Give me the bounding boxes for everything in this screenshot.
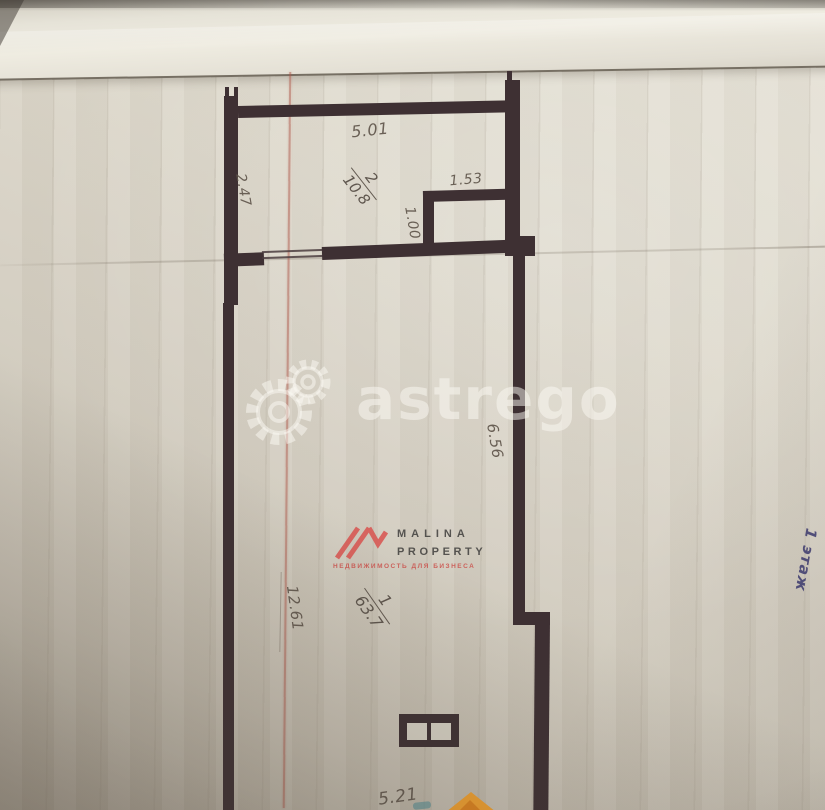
wall-right-lower xyxy=(533,620,550,810)
dimension-left-height: 12.61 xyxy=(283,584,307,632)
malina-m-icon xyxy=(334,524,392,560)
wall-closet-vertical xyxy=(423,192,434,249)
orange-marker-shadow xyxy=(458,800,482,810)
malina-property-logo: MALINA PROPERTY НЕДВИЖИМОСТЬ ДЛЯ БИЗНЕСА xyxy=(330,522,505,577)
wall-divider-main xyxy=(322,240,507,260)
wall-closet-horizontal xyxy=(423,189,507,202)
wall-top xyxy=(238,100,508,118)
vent-shaft xyxy=(399,714,459,747)
dimension-extension-line xyxy=(279,572,281,652)
malina-name-text: MALINA xyxy=(397,528,470,540)
dimension-top: 5.01 xyxy=(350,119,389,142)
photo-top-edge-gradient xyxy=(0,0,825,8)
floor-plan-photo: 5.01 2 10.8 1.53 1.00 2.47 6.56 12.61 1 … xyxy=(0,0,825,810)
astrego-watermark: astrego xyxy=(246,352,621,464)
wall-divider-left-stub xyxy=(224,252,264,266)
wall-right-upper xyxy=(505,80,520,248)
wall-left-lower xyxy=(223,303,234,810)
dimension-closet-width: 1.53 xyxy=(449,171,483,190)
vent-shaft-cell-1 xyxy=(407,723,427,740)
astrego-watermark-text: astrego xyxy=(356,370,621,428)
malina-subtitle-text: НЕДВИЖИМОСТЬ ДЛЯ БИЗНЕСА xyxy=(333,563,475,570)
vent-shaft-cell-2 xyxy=(431,723,451,740)
floor-label: 1 этаж xyxy=(792,527,821,593)
teal-smudge xyxy=(413,801,432,810)
dimension-closet-depth: 1.00 xyxy=(401,205,423,240)
gears-icon xyxy=(246,352,346,464)
malina-property-text: PROPERTY xyxy=(397,546,486,558)
room-label-1: 1 63.7 xyxy=(349,577,406,635)
room-label-2: 2 10.8 xyxy=(337,156,392,211)
